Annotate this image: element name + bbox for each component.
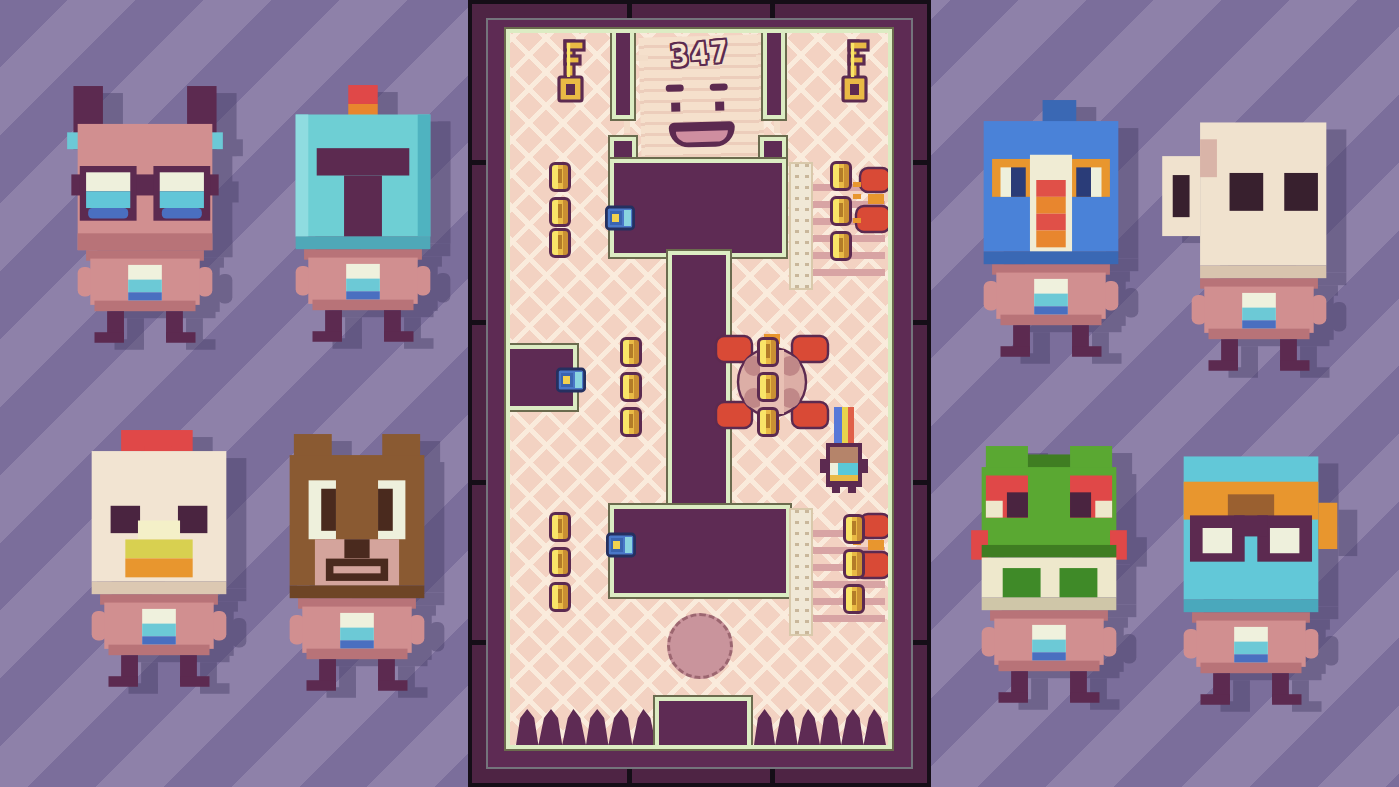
frame-divider: [468, 480, 488, 485]
coin-item: [620, 372, 642, 402]
score-banner: 347: [638, 34, 764, 161]
gate-fence: [789, 508, 813, 636]
coin-item: [830, 196, 852, 226]
banner-face-eyebrow: [666, 84, 684, 91]
coin-item: [549, 547, 571, 577]
frame-divider: [911, 640, 931, 645]
character-knight[interactable]: [262, 85, 464, 346]
banner-face-eye: [671, 103, 680, 112]
character-bear[interactable]: [256, 434, 458, 695]
coin-item: [843, 584, 865, 614]
coin-item: [843, 549, 865, 579]
floor-pressure-plate: [667, 613, 733, 679]
key-item: [551, 39, 589, 105]
wall-i-bottom-bar: [610, 505, 790, 597]
score-text: 347: [637, 30, 763, 77]
coin-item: [549, 512, 571, 542]
coin-item: [830, 161, 852, 191]
coin-item: [549, 228, 571, 258]
crab-small: [852, 166, 892, 238]
gate-fence: [789, 162, 813, 290]
wall-door-alcove: [655, 697, 751, 749]
key-item: [835, 39, 873, 105]
coin-item: [830, 231, 852, 261]
snail-item: [556, 367, 586, 393]
wall-i-top-bar: [610, 159, 786, 257]
banner-face-eyebrow: [710, 83, 728, 90]
character-bat-glasses[interactable]: [44, 86, 246, 347]
coin-item: [549, 162, 571, 192]
spikes-row-right: [754, 709, 886, 745]
coin-item: [757, 372, 779, 402]
wall-face-stub-left: [612, 29, 634, 119]
banner-face-smile: [669, 121, 736, 148]
frame-divider: [911, 160, 931, 165]
character-frog[interactable]: [948, 446, 1150, 707]
character-mug[interactable]: [1158, 114, 1360, 375]
frame-divider: [627, 0, 632, 20]
game-screen: { "hud": { "score": "347" }, "palette": …: [0, 0, 1399, 787]
frame-divider: [468, 320, 488, 325]
coin-item: [843, 514, 865, 544]
coin-item: [549, 582, 571, 612]
frame-divider: [911, 480, 931, 485]
snail-item: [606, 532, 636, 558]
coin-item: [757, 407, 779, 437]
player-character: [814, 407, 874, 495]
spikes-row-left: [516, 709, 656, 745]
game-board: 347: [468, 0, 931, 787]
wall-face-stub-right: [763, 29, 785, 119]
coin-item: [549, 197, 571, 227]
character-chicken[interactable]: [58, 430, 260, 691]
frame-divider: [770, 0, 775, 20]
character-mandrill[interactable]: [950, 100, 1152, 361]
banner-face-eye: [715, 101, 724, 110]
arena-floor: 347: [506, 29, 892, 749]
coin-item: [620, 407, 642, 437]
character-diver[interactable]: [1150, 448, 1352, 709]
frame-divider: [911, 320, 931, 325]
frame-divider: [468, 640, 488, 645]
snail-item: [605, 205, 635, 231]
coin-item: [620, 337, 642, 367]
coin-item: [757, 337, 779, 367]
frame-divider: [468, 160, 488, 165]
